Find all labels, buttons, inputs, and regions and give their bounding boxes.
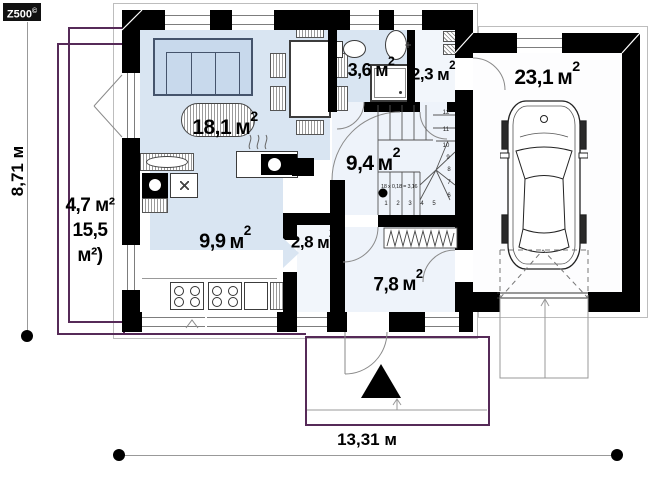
stair-step-number: 9 (443, 155, 453, 161)
terrace-label-line: 15,5 (48, 220, 132, 242)
sofa-cushion-divider (191, 52, 192, 95)
stair-step-number: 11 (441, 127, 451, 133)
wall (389, 312, 425, 332)
toilet-bowl (343, 40, 366, 58)
wall (379, 10, 394, 30)
kitchen-sink-circle (149, 179, 161, 191)
terrace-outline-outer (57, 43, 125, 335)
window (394, 10, 422, 30)
stair-step-number: 7 (444, 180, 454, 186)
wall (422, 10, 473, 30)
terrace-label-line: 4,7 м² (48, 195, 132, 217)
stair-step-number: 8 (444, 167, 454, 173)
kitchen-hob (208, 282, 242, 310)
room-label-garage: 23,1м2 (505, 64, 589, 90)
kitchen-cabinet-x (170, 173, 198, 198)
garage-window (517, 33, 562, 53)
dining-chair (270, 53, 286, 78)
stair-step-number: 10 (441, 143, 451, 149)
z500-logo: Z500© (3, 3, 41, 21)
kitchen-fridge (244, 282, 268, 310)
front-door-opening (347, 312, 389, 332)
terrace-door (122, 73, 140, 138)
garage-wall (473, 292, 500, 312)
room-label-closet: 2,3м2 (406, 64, 460, 85)
wall (122, 312, 142, 332)
window (425, 312, 459, 332)
wall (210, 10, 232, 30)
door-opening (455, 250, 473, 282)
window (297, 312, 327, 332)
terrace-label-line: м²) (48, 245, 132, 267)
wall (274, 10, 350, 30)
interior-wall (328, 30, 337, 102)
stair-step-number: 3 (405, 201, 415, 207)
garage-wall (455, 33, 517, 53)
window (350, 10, 379, 30)
interior-wall (283, 272, 297, 332)
room-label-living-room: 18,1м2 (178, 114, 272, 140)
stair-step-number: 2 (393, 201, 403, 207)
dimension-endpoint (611, 449, 623, 461)
interior-wall (378, 215, 473, 227)
window (142, 312, 205, 332)
stair-step-number: 6 (444, 193, 454, 199)
sofa-inner-line (166, 52, 240, 95)
kitchen-counter-bottom-line (142, 278, 277, 279)
stair-step-number: 5 (429, 201, 439, 207)
stair-step-number: 1 (381, 201, 391, 207)
kitchen-cabinet-hatched (142, 198, 168, 213)
room-label-hall: 9,4м2 (337, 150, 409, 176)
interior-wall (328, 102, 337, 112)
dining-table (289, 40, 331, 118)
dimension-endpoint (21, 330, 33, 342)
room-label-pantry: 2,8м2 (283, 232, 343, 253)
stair-step-number: 12 (441, 110, 451, 116)
floor-plan: 18,1м2 9,9м2 3,6м2 2,3м2 23,1м2 9,4м2 2,… (0, 0, 655, 493)
interior-wall (330, 180, 345, 215)
wall (122, 10, 140, 73)
window (232, 10, 274, 30)
sofa-cushion-divider (215, 52, 216, 95)
room-label-bathroom: 3,6м2 (341, 58, 401, 81)
width-dimension-label: 13,31 м (312, 430, 422, 450)
interior-wall (292, 158, 314, 176)
garage-wall (622, 33, 640, 312)
dining-chair (296, 120, 324, 135)
stair-dimension-note: 18 x 0,18 = 3,16 (381, 184, 439, 190)
window (165, 10, 210, 30)
width-dimension-line (119, 455, 618, 456)
dining-chair (270, 86, 286, 111)
window (207, 312, 277, 332)
paving-edge-line (125, 333, 306, 335)
kitchen-stove (170, 282, 204, 310)
entrance-marker (361, 364, 401, 398)
kitchen-hood (146, 156, 188, 168)
interior-wall (364, 102, 420, 112)
stair-step-number: 4 (417, 201, 427, 207)
dimension-endpoint (113, 449, 125, 461)
shower-drain (399, 91, 402, 94)
room-label-vestibule: 7,8м2 (365, 271, 431, 296)
fireplace-flue-circle (268, 158, 281, 171)
room-label-kitchen: 9,9м2 (183, 228, 267, 254)
vestibule-floor (345, 227, 455, 312)
garage-wall (588, 292, 622, 312)
height-dimension-label: 8,71 м (8, 126, 28, 216)
